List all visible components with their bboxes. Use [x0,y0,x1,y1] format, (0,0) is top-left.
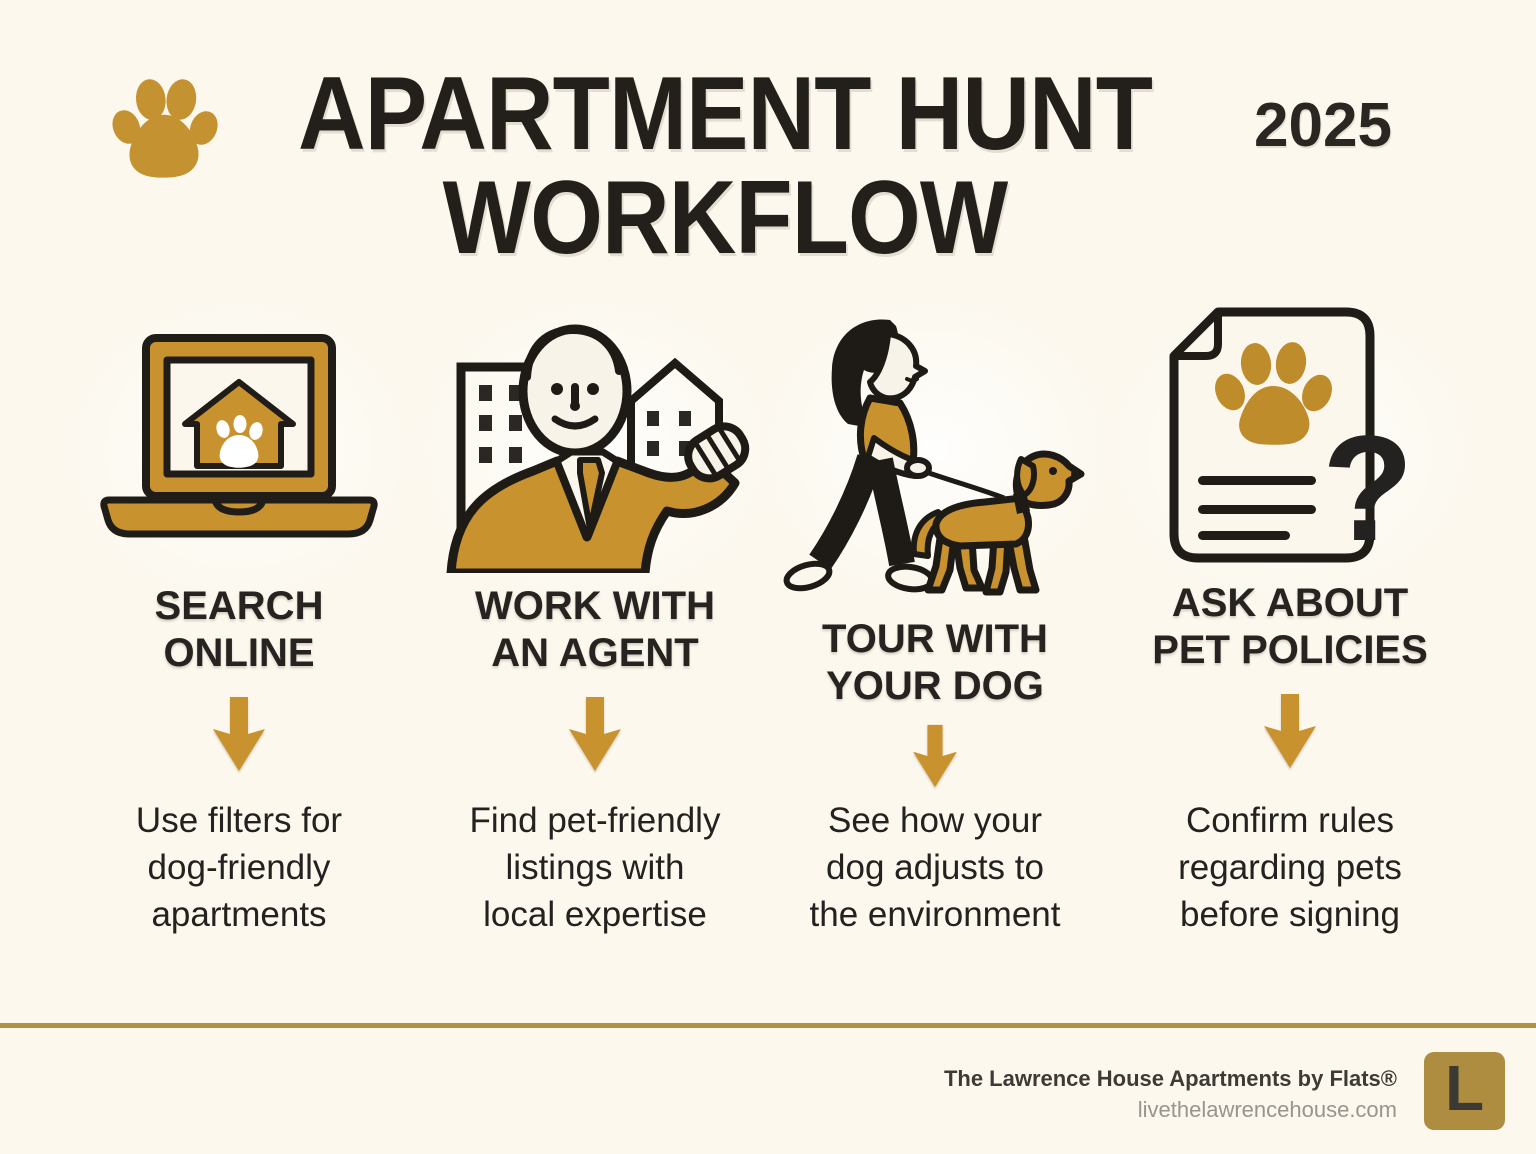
paw-print-icon [106,70,218,184]
desc-line: Confirm rules [1186,801,1394,840]
step-title: ASK ABOUTPET POLICIES [1094,580,1486,674]
step-tour-with-dog: TOUR WITHYOUR DOG See how yourdog adjust… [770,300,1100,960]
footer-divider [0,1023,1536,1028]
step-title: TOUR WITHYOUR DOG [746,616,1124,710]
woman-walking-dog-icon [770,308,1100,608]
down-arrow-icon [568,696,622,772]
footer-brand-text: The Lawrence House Apartments by Flats® [944,1066,1397,1092]
desc-line: listings with [506,848,685,887]
desc-line: local expertise [483,895,707,934]
footer-website: livethelawrencehouse.com [1138,1097,1397,1123]
desc-line: dog adjusts to [826,848,1044,887]
down-arrow-icon [908,724,962,788]
step-title-line: YOUR DOG [826,664,1044,708]
step-title-line: ONLINE [163,631,314,675]
desc-line: regarding pets [1178,848,1402,887]
svg-text:?: ? [1322,404,1414,572]
step-description: Confirm rulesregarding petsbefore signin… [1084,797,1496,938]
desc-line: the environment [810,895,1061,934]
brand-logo-letter: L [1445,1056,1484,1120]
step-search-online: SEARCHONLINE Use filters fordog-friendly… [78,300,400,960]
desc-line: dog-friendly [148,848,331,887]
step-title-line: ASK ABOUT [1172,581,1408,625]
brand-logo: L [1424,1052,1505,1130]
laptop-house-paw-icon [78,328,400,568]
step-title-line: WORK WITH [475,584,715,628]
page-title-line1: APARTMENT HUNT [226,62,1225,166]
step-title-line: PET POLICIES [1152,628,1428,672]
step-work-with-agent: WORK WITHAN AGENT Find pet-friendlylisti… [428,300,762,960]
page-title-line2: WORKFLOW [226,166,1225,270]
desc-line: apartments [151,895,326,934]
step-description: Use filters fordog-friendlyapartments [44,797,434,938]
desc-line: before signing [1180,895,1400,934]
desc-line: Use filters for [136,801,342,840]
step-title-line: TOUR WITH [822,617,1048,661]
step-title-line: AN AGENT [491,631,698,675]
step-title: WORK WITHAN AGENT [404,583,786,677]
infographic-canvas: APARTMENT HUNT WORKFLOW 2025 [0,0,1536,1154]
desc-line: See how your [828,801,1042,840]
real-estate-agent-icon [428,305,762,573]
desc-line: Find pet-friendly [470,801,721,840]
step-ask-pet-policies: ? ASK ABOUTPET POLICIES Confirm rulesreg… [1118,300,1462,960]
pet-policy-document-icon: ? [1118,300,1462,585]
step-title-line: SEARCH [155,584,324,628]
step-description: See how yourdog adjusts tothe environmen… [736,797,1134,938]
down-arrow-icon [212,696,266,772]
step-title: SEARCHONLINE [54,583,424,677]
down-arrow-icon [1263,693,1317,769]
year-label: 2025 [1238,90,1408,161]
